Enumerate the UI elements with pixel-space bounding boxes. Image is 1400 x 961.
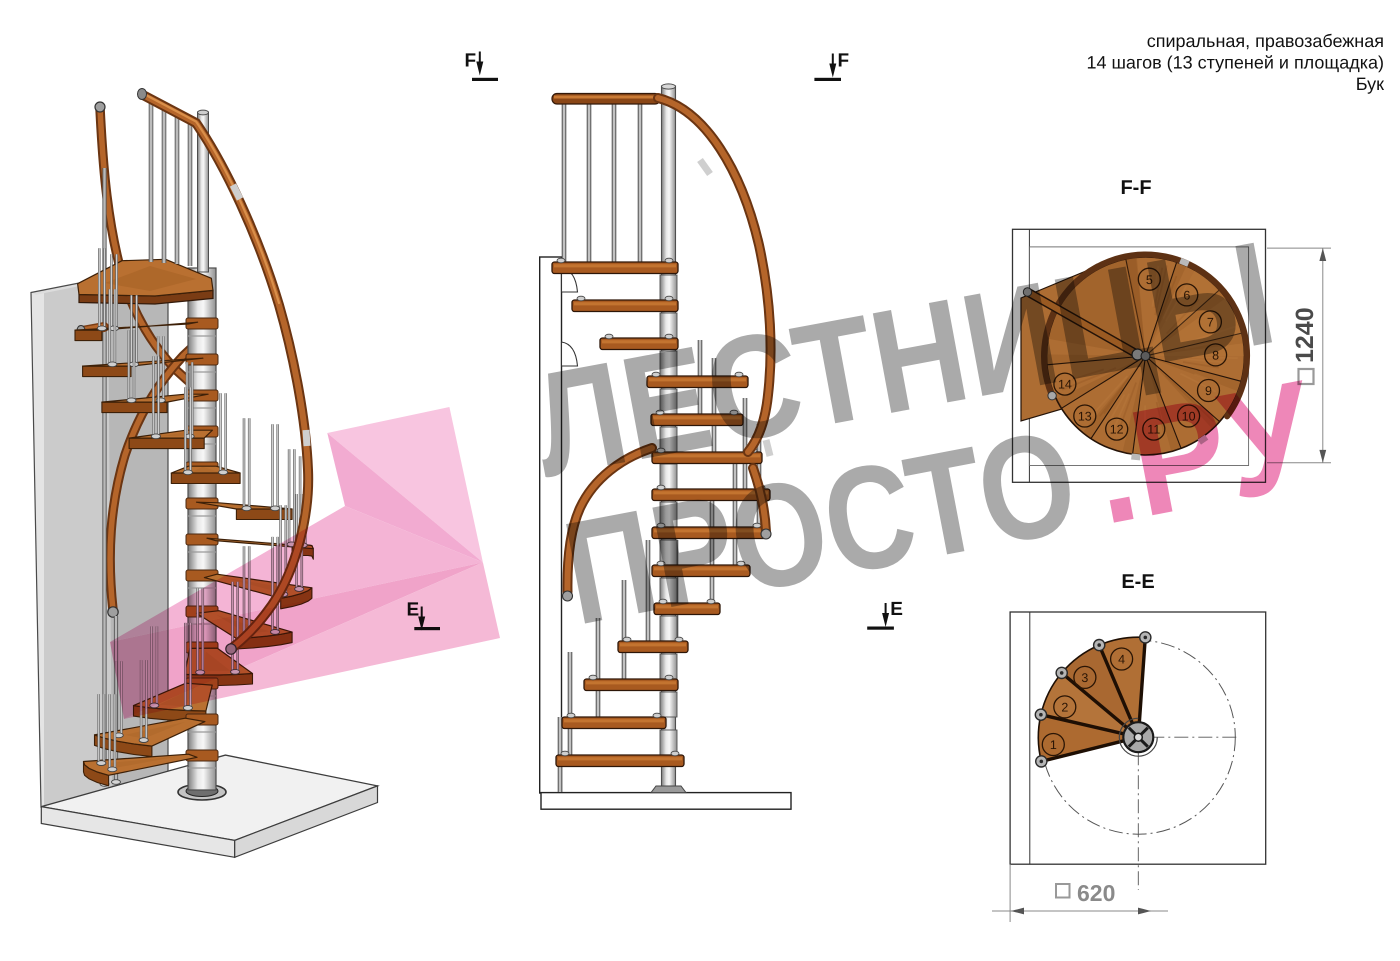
svg-text:2: 2 — [1061, 701, 1068, 715]
svg-text:F-F: F-F — [1120, 177, 1151, 199]
svg-text:F: F — [465, 51, 477, 72]
svg-text:4: 4 — [1118, 653, 1125, 667]
svg-text:F: F — [838, 51, 850, 72]
svg-text:3: 3 — [1081, 671, 1088, 685]
svg-text:1: 1 — [1050, 738, 1057, 752]
svg-text:спиральная, правозабежная: спиральная, правозабежная — [1147, 31, 1384, 51]
svg-text:E-E: E-E — [1121, 571, 1154, 593]
svg-text:620: 620 — [1077, 880, 1115, 906]
svg-text:14 шагов (13 ступеней и площад: 14 шагов (13 ступеней и площадка) — [1086, 53, 1384, 73]
svg-text:E: E — [890, 599, 903, 620]
svg-text:Бук: Бук — [1356, 74, 1384, 94]
